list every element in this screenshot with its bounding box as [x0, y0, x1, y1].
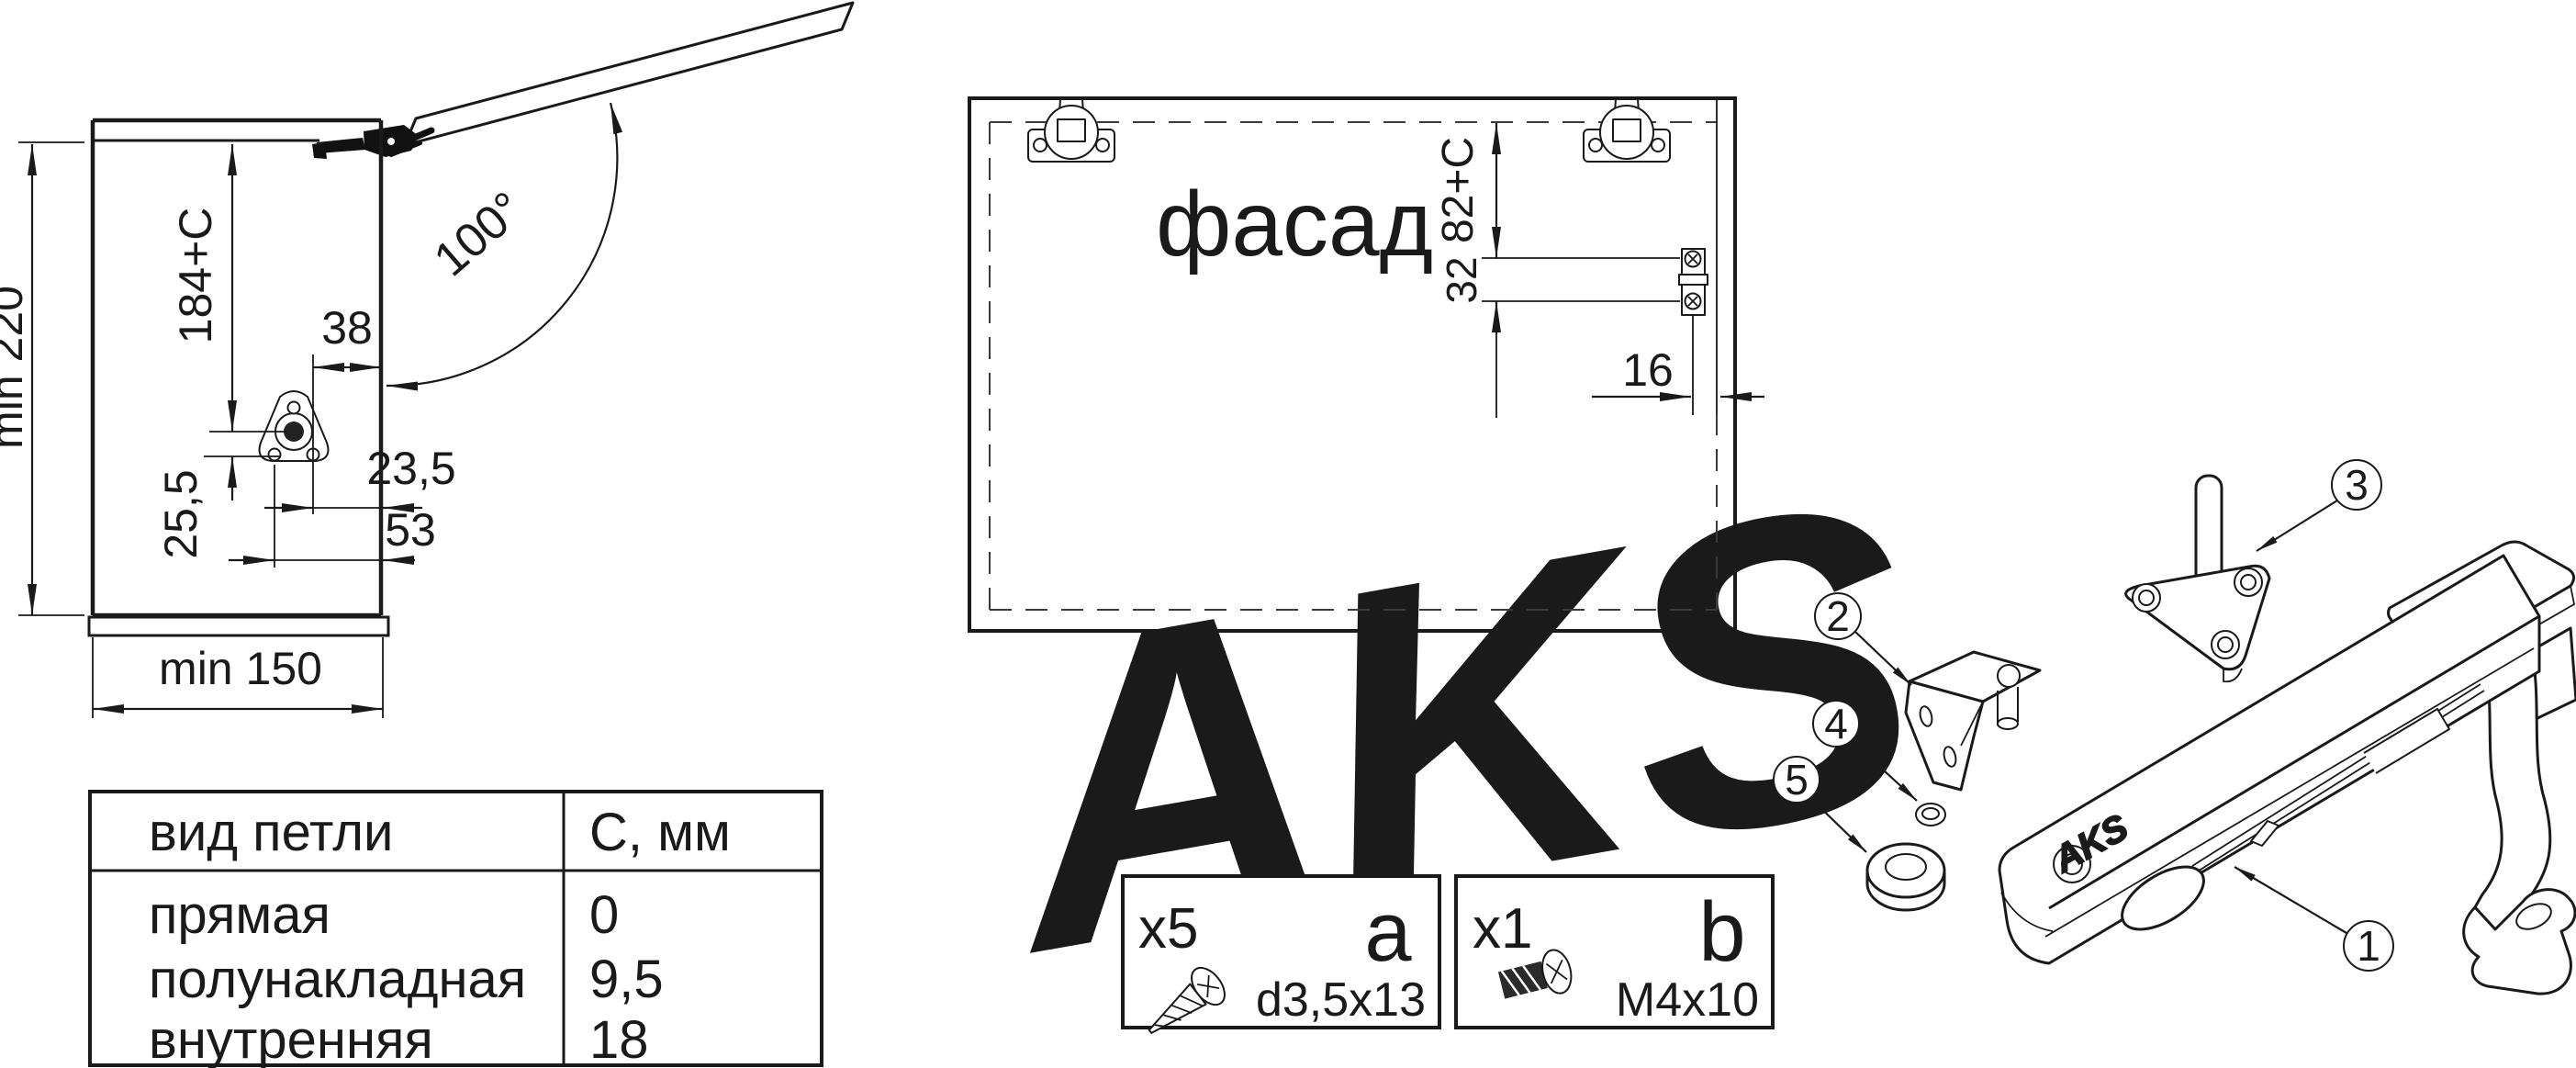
open-lid: [405, 3, 853, 145]
dim-16: 16: [1622, 344, 1674, 396]
dim-angle: 100°: [424, 182, 533, 287]
bushing-part: [1916, 804, 1945, 826]
technical-drawing: AKS 100° min 220 184+C: [0, 0, 2576, 1068]
hinge-offset-table: вид петли С, мм прямая 0 полунакладная 9…: [90, 792, 822, 1068]
table-cell-c-3: 18: [589, 1010, 649, 1068]
table-cell-c-2: 9,5: [589, 950, 664, 1009]
part-label-3: 3: [2345, 461, 2369, 509]
hardware-box-a: x5 a d3,5x13: [1123, 876, 1439, 1048]
dim-min-height: min 220: [0, 286, 32, 449]
hinge-icon-right: [1584, 99, 1670, 162]
mounting-plate-icon: [260, 391, 329, 461]
hardware-a-qty: x5: [1138, 897, 1198, 961]
hardware-b-size: M4x10: [1616, 973, 1759, 1027]
dim-arm-height: 184+C: [170, 208, 221, 344]
side-view-drawing: 100° min 220 184+C 38 25,5: [0, 3, 853, 718]
part-balloon-1: 1: [2344, 921, 2393, 971]
part-balloon-3: 3: [2332, 460, 2381, 510]
part-label-2: 2: [1826, 592, 1850, 640]
dim-82c: 82+C: [1434, 137, 1483, 243]
assembly-instruction-sheet: AKS 100° min 220 184+C: [0, 0, 2576, 1068]
table-cell-c-1: 0: [589, 885, 619, 945]
table-cell-type-1: прямая: [149, 885, 330, 945]
washer-part: [1867, 844, 1944, 910]
part-balloon-5: 5: [1774, 756, 1820, 804]
table-cell-type-2: полунакладная: [149, 950, 526, 1009]
dim-32: 32: [1438, 256, 1485, 303]
hardware-a-letter: a: [1364, 885, 1412, 979]
lift-body-part: AKS: [1999, 542, 2576, 994]
dim-38: 38: [321, 302, 373, 354]
table-header-type: вид петли: [149, 803, 393, 862]
hardware-b-letter: b: [1698, 885, 1745, 979]
table-cell-type-3: внутренняя: [149, 1010, 433, 1068]
dim-53: 53: [385, 504, 436, 556]
dim-25-5: 25,5: [155, 469, 207, 558]
part-label-1: 1: [2357, 922, 2380, 970]
dim-23-5: 23,5: [366, 443, 455, 494]
part-label-5: 5: [1785, 756, 1809, 804]
hinge-icon-left: [1028, 99, 1114, 162]
part-balloon-4: 4: [1813, 700, 1859, 748]
side-plate-icon: [1679, 249, 1708, 415]
dim-min-depth: min 150: [159, 643, 322, 694]
pin-plate-part: [2126, 476, 2269, 681]
hardware-b-qty: x1: [1473, 897, 1532, 961]
part-balloon-2: 2: [1815, 592, 1861, 640]
hardware-a-size: d3,5x13: [1256, 973, 1426, 1027]
hardware-box-b: x1 b M4x10: [1456, 876, 1773, 1028]
table-header-c: С, мм: [589, 803, 731, 862]
facade-label: фасад: [1156, 173, 1433, 275]
part-label-4: 4: [1824, 700, 1848, 748]
